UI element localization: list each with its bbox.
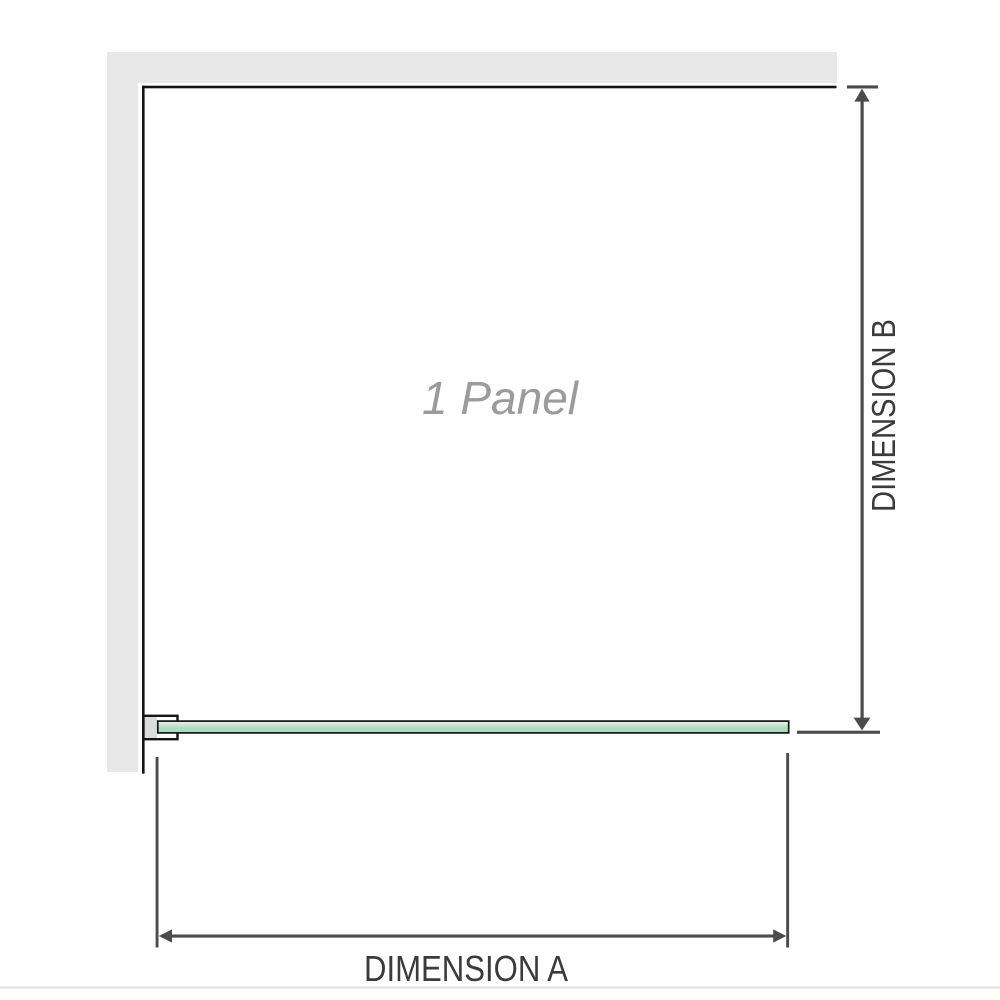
svg-text:DIMENSION A: DIMENSION A (364, 948, 569, 989)
svg-text:1 Panel: 1 Panel (422, 372, 580, 424)
svg-text:DIMENSION B: DIMENSION B (865, 319, 902, 512)
